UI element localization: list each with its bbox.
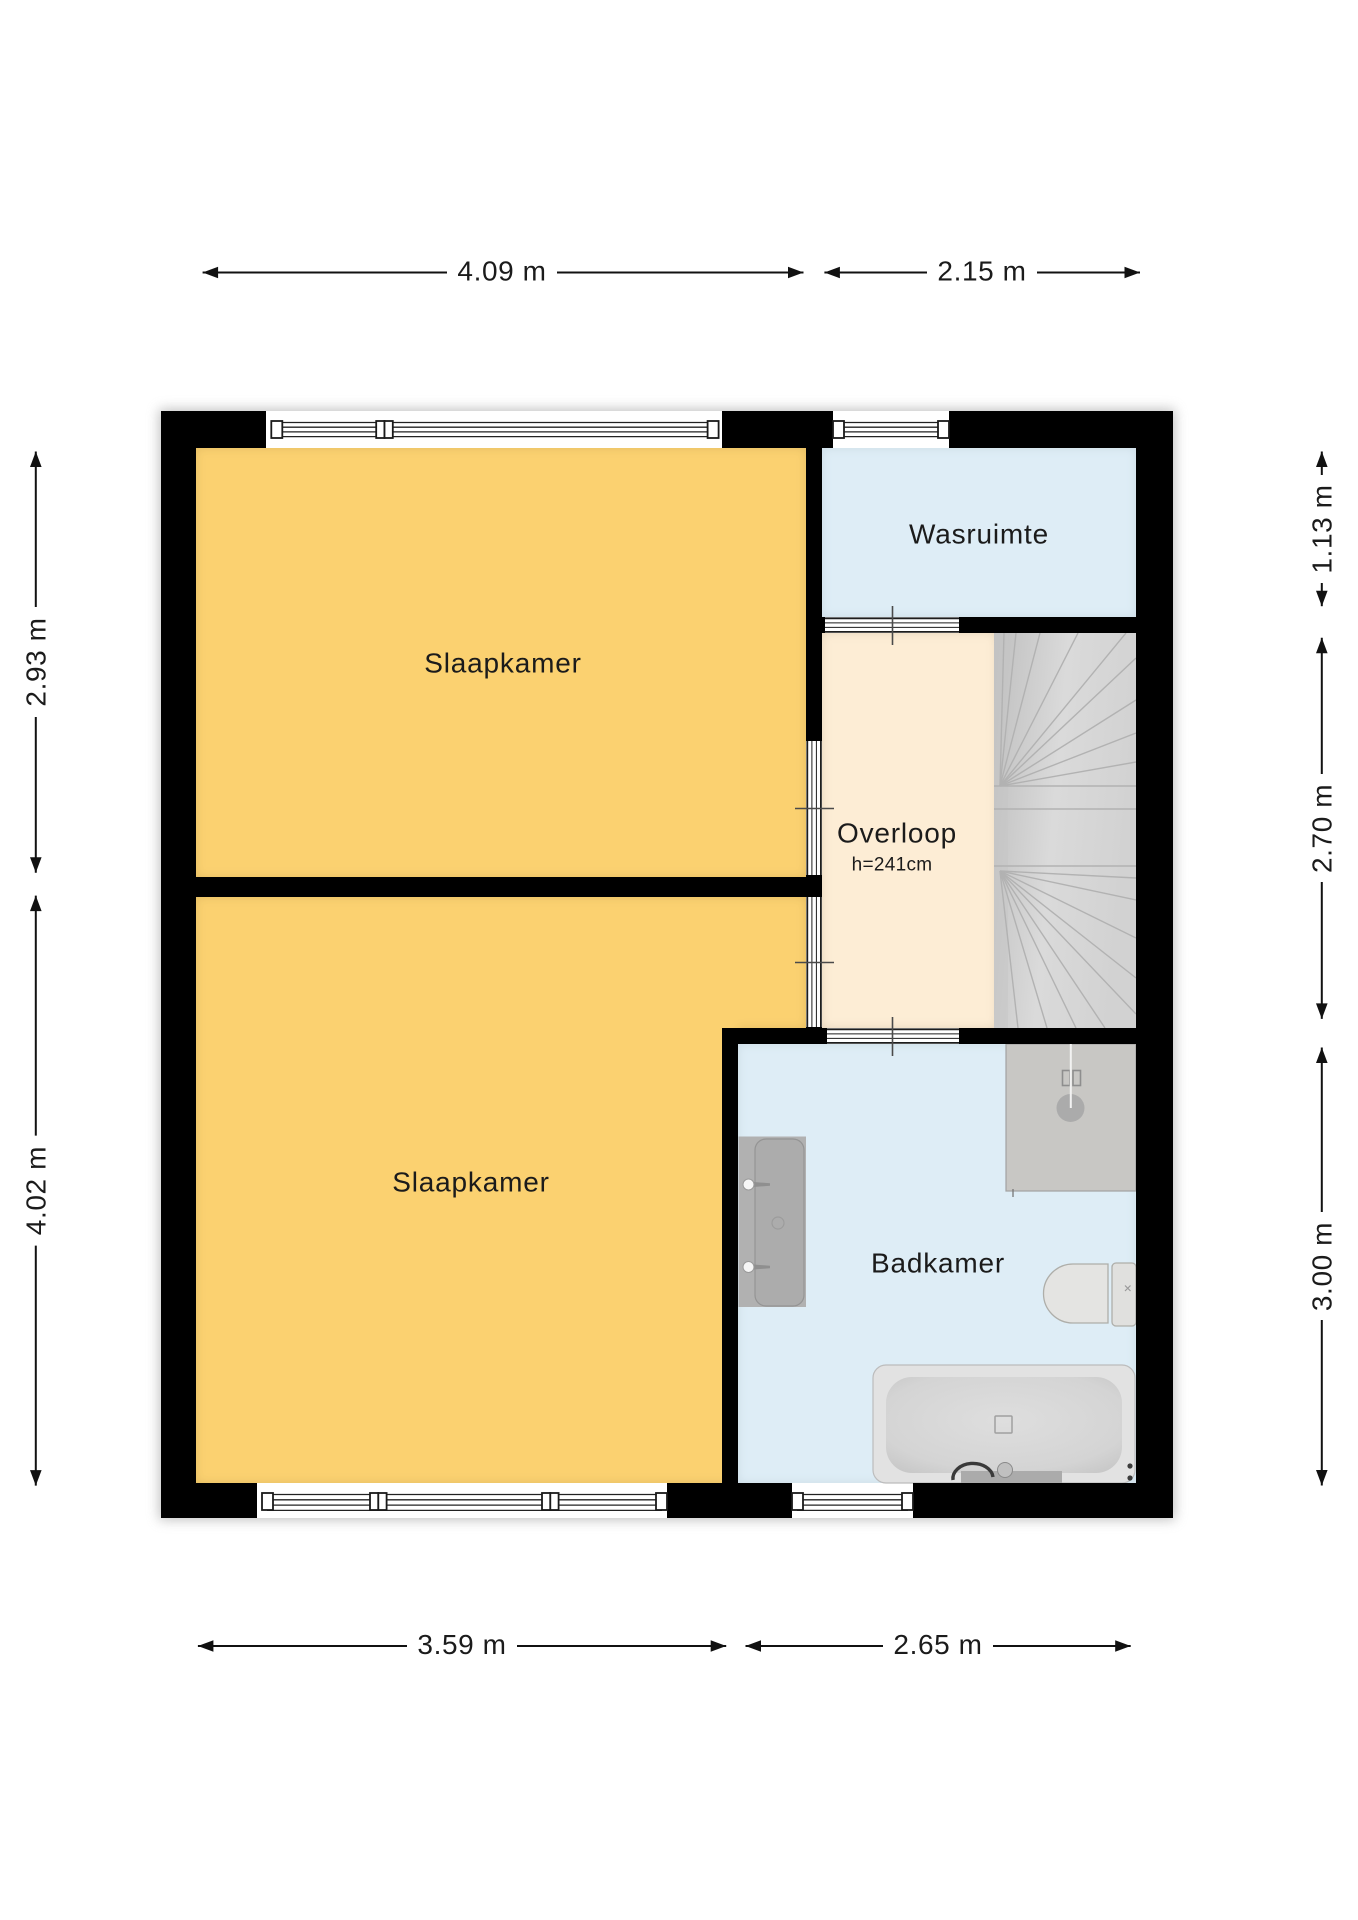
svg-text:Overloop: Overloop [837,818,957,849]
svg-text:3.59 m: 3.59 m [417,1629,506,1660]
svg-text:Badkamer: Badkamer [871,1248,1005,1279]
svg-text:2.65 m: 2.65 m [893,1629,982,1660]
svg-text:h=241cm: h=241cm [852,855,933,876]
svg-text:4.02 m: 4.02 m [20,1146,51,1235]
svg-text:Slaapkamer: Slaapkamer [424,648,581,679]
svg-text:1.13 m: 1.13 m [1306,484,1337,573]
svg-text:2.70 m: 2.70 m [1306,784,1337,873]
svg-text:2.15 m: 2.15 m [937,256,1026,287]
svg-text:2.93 m: 2.93 m [20,617,51,706]
svg-text:Slaapkamer: Slaapkamer [392,1167,549,1198]
svg-text:3.00 m: 3.00 m [1306,1222,1337,1311]
svg-text:4.09 m: 4.09 m [457,256,546,287]
svg-text:Wasruimte: Wasruimte [909,519,1049,550]
